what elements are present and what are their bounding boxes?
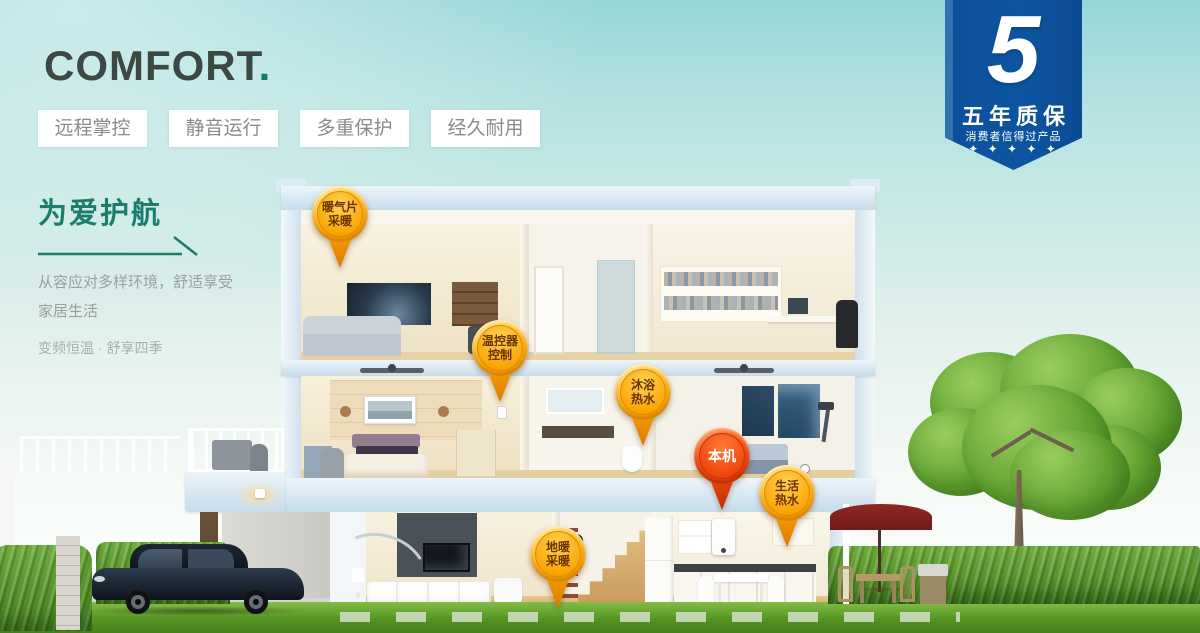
brand-text: COMFORT (44, 42, 259, 89)
balcony-desk (212, 440, 252, 470)
picture-art (368, 401, 412, 419)
feature-buttons: 远程掌控 静音运行 多重保护 经久耐用 (38, 110, 540, 147)
pin-label: 热水 (775, 493, 799, 507)
pin-head: 生活热水 (759, 465, 815, 521)
ceiling-strip (301, 210, 855, 224)
sofa-seat (303, 334, 401, 356)
tree-foliage (1010, 430, 1130, 520)
pin-inner: 暖气片采暖 (317, 191, 363, 237)
underline-flourish-icon (38, 234, 238, 258)
pin-label: 暖气片 (322, 200, 358, 214)
monitor (788, 298, 808, 314)
interior-wall (645, 224, 653, 360)
books-row (664, 272, 778, 286)
pin-head: 地暖采暖 (530, 526, 586, 582)
stone-pillar (56, 536, 80, 630)
intro-desc-line2: 家居生活 (38, 297, 318, 326)
patio-table (856, 574, 902, 581)
feature-button-durable[interactable]: 经久耐用 (431, 110, 540, 147)
ceiling-fan-hub (388, 364, 396, 372)
car-wheel (126, 590, 150, 614)
pin-label: 沐浴 (631, 378, 655, 392)
pin-domestic-hot-water[interactable]: 生活热水 (759, 465, 815, 547)
brand-title: COMFORT. (44, 42, 271, 90)
boiler-dial (721, 548, 726, 553)
roof-slab (281, 186, 875, 210)
office-chair (836, 300, 858, 348)
patio-chair (838, 566, 853, 602)
pin-floor-heating[interactable]: 地暖采暖 (530, 526, 586, 608)
pin-inner: 温控器控制 (477, 325, 523, 371)
shower-glass (597, 260, 635, 354)
patio-umbrella (830, 504, 932, 530)
pin-thermostat-control[interactable]: 温控器控制 (472, 320, 528, 402)
pin-inner: 地暖采暖 (535, 531, 581, 577)
stars-icon: ✦ ✦ ✦ ✦ ✦ (945, 142, 1082, 156)
balcony-chair (250, 444, 268, 471)
pin-label: 控制 (482, 348, 518, 362)
telescope (818, 402, 834, 410)
poster (778, 384, 820, 438)
pin-inner: 沐浴热水 (620, 369, 666, 415)
pin-inner: 本机 (699, 433, 745, 479)
grill-top (918, 564, 948, 576)
pin-inner: 生活热水 (764, 470, 810, 516)
paver-stones (340, 612, 960, 622)
open-shelf (678, 520, 712, 554)
pin-main-unit[interactable]: 本机 (694, 428, 750, 510)
patio-chair (900, 566, 915, 602)
armchair (494, 578, 522, 604)
intro-description: 从容应对多样环境，舒适享受 家居生活 (38, 268, 318, 326)
feature-button-remote-control[interactable]: 远程掌控 (38, 110, 147, 147)
thermostat (497, 406, 507, 419)
kitchen-counter (674, 564, 816, 572)
grill-cart (920, 576, 946, 604)
vanity-counter (542, 426, 614, 438)
terrace-fence (20, 436, 180, 472)
pin-label: 采暖 (322, 214, 358, 228)
car-body (92, 568, 304, 600)
warranty-years-number: 5 (945, 2, 1082, 98)
intro-heading: 为爱护航 (38, 190, 318, 232)
pin-radiator-heating[interactable]: 暖气片采暖 (312, 186, 368, 268)
patio-table-leg (892, 581, 896, 603)
intro-desc-line1: 从容应对多样环境，舒适享受 (38, 268, 318, 297)
warranty-title: 五年质保 (945, 99, 1082, 131)
toilet (622, 446, 642, 472)
car-windshield (138, 549, 182, 569)
intro-tagline: 变频恒温 · 舒享四季 (38, 338, 162, 358)
wall-sconce-icon (255, 489, 265, 498)
car-wheel (244, 590, 268, 614)
intro-block: 为爱护航 从容应对多样环境，舒适享受 家居生活 (38, 190, 318, 326)
pin-label: 采暖 (546, 554, 570, 568)
car-shadow (88, 606, 308, 616)
pin-label: 热水 (631, 392, 655, 406)
pin-label: 本机 (708, 449, 736, 463)
patio-table-leg (860, 581, 864, 603)
ceiling-fan-hub (740, 364, 748, 372)
exterior-wall-right (855, 210, 875, 478)
umbrella-pole (878, 528, 881, 592)
pin-label: 生活 (775, 479, 799, 493)
car-headlight (94, 576, 105, 582)
feature-button-multi-protection[interactable]: 多重保护 (300, 110, 409, 147)
pin-head: 本机 (694, 428, 750, 484)
living-tv (423, 543, 470, 572)
vanity-base (544, 438, 612, 454)
dining-chair (698, 576, 714, 604)
dining-table (714, 574, 768, 582)
car-window (188, 549, 234, 568)
floor-lamp (352, 568, 364, 582)
wardrobe (456, 430, 496, 476)
desk (768, 316, 840, 322)
pin-label: 地暖 (546, 540, 570, 554)
pin-head: 沐浴热水 (615, 364, 671, 420)
warranty-badge: 5 五年质保 消费者信得过产品 ✦ ✦ ✦ ✦ ✦ (945, 0, 1082, 170)
pin-head: 温控器控制 (472, 320, 528, 376)
pendant-lamp-icon (340, 406, 351, 417)
hero-banner: 暖气片采暖 温控器控制 沐浴热水 本机 生活热水 (0, 0, 1200, 633)
bedroom-chair (320, 448, 344, 478)
brand-dot: . (259, 42, 272, 89)
pendant-lamp-icon (438, 406, 449, 417)
books-row (664, 296, 778, 310)
pin-label: 温控器 (482, 334, 518, 348)
dining-chair (768, 576, 784, 604)
fridge (645, 516, 673, 606)
pin-bath-hot-water[interactable]: 沐浴热水 (615, 364, 671, 446)
car (92, 544, 304, 616)
bathroom-mirror (546, 388, 604, 414)
feature-button-quiet-operation[interactable]: 静音运行 (169, 110, 278, 147)
bathroom-door (534, 266, 564, 354)
bed-duvet (344, 454, 428, 478)
pin-head: 暖气片采暖 (312, 186, 368, 242)
